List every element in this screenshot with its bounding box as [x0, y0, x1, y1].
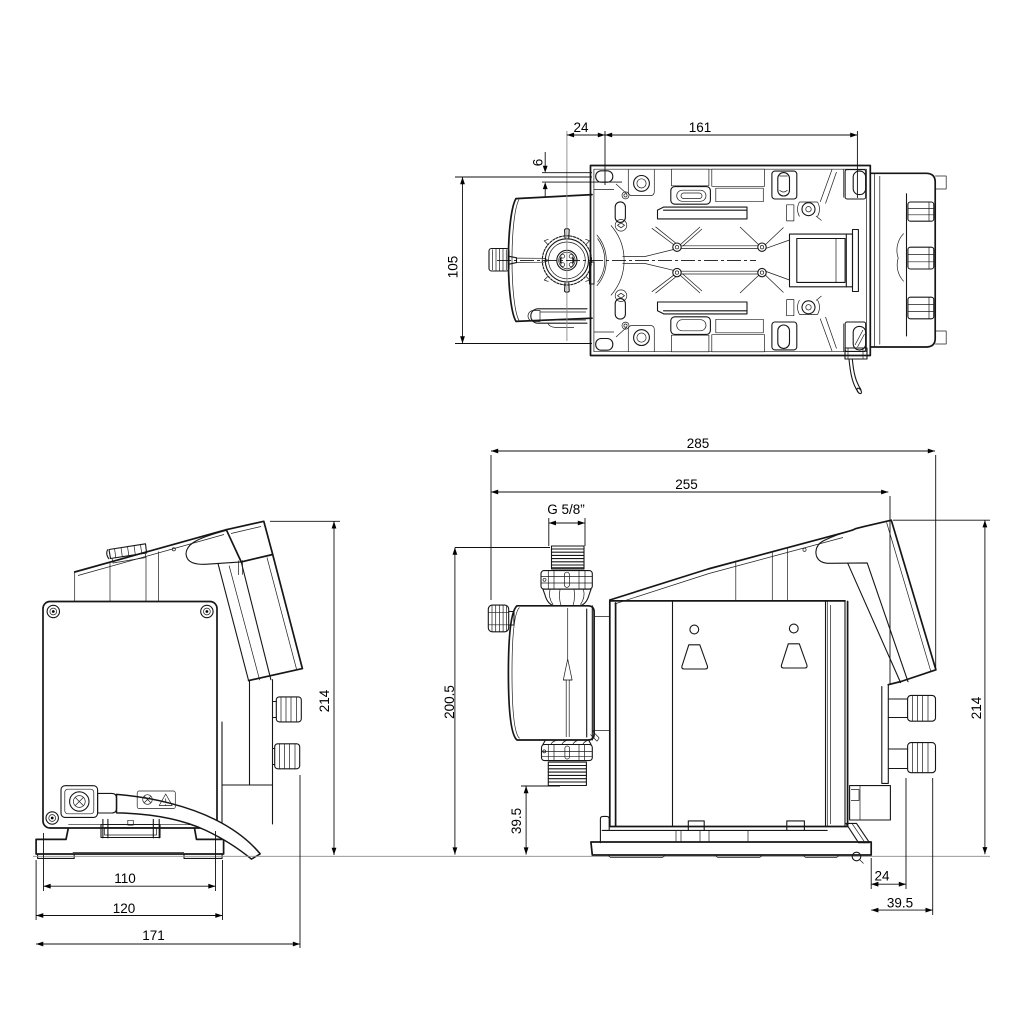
svg-text:120: 120	[113, 901, 136, 916]
svg-text:39.5: 39.5	[509, 808, 524, 834]
svg-text:171: 171	[142, 928, 165, 943]
svg-text:255: 255	[675, 477, 698, 492]
svg-text:24: 24	[573, 120, 589, 135]
svg-text:161: 161	[689, 120, 712, 135]
svg-text:285: 285	[687, 436, 710, 451]
svg-text:214: 214	[317, 689, 332, 712]
svg-text:105: 105	[446, 256, 461, 279]
svg-text:39.5: 39.5	[887, 896, 913, 911]
svg-text:110: 110	[114, 871, 136, 886]
svg-text:6: 6	[531, 159, 546, 167]
svg-text:G 5/8”: G 5/8”	[547, 502, 585, 517]
svg-text:214: 214	[969, 696, 984, 719]
svg-text:24: 24	[874, 869, 890, 884]
svg-text:200.5: 200.5	[442, 685, 457, 719]
